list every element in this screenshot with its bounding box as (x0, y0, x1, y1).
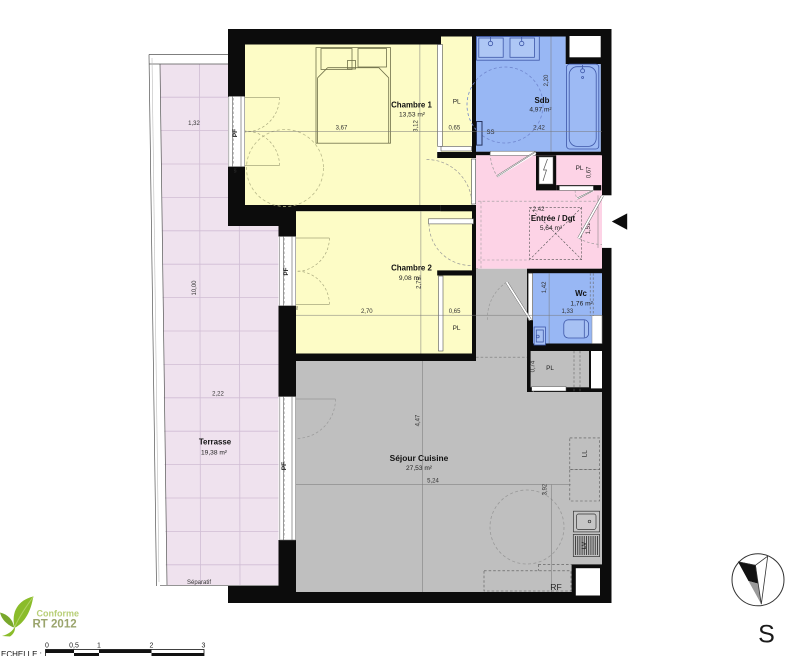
svg-text:S: S (758, 621, 775, 649)
svg-text:Conforme: Conforme (37, 609, 80, 619)
svg-text:2,42: 2,42 (533, 207, 545, 213)
svg-text:Séjour Cuisine: Séjour Cuisine (390, 453, 449, 463)
svg-text:PL: PL (546, 365, 554, 372)
svg-text:2,22: 2,22 (212, 392, 224, 398)
svg-text:0,74: 0,74 (531, 360, 537, 372)
svg-text:1: 1 (97, 643, 101, 650)
svg-text:5,24: 5,24 (427, 479, 439, 485)
svg-text:1,32: 1,32 (188, 121, 200, 127)
svg-text:4,47: 4,47 (416, 414, 422, 426)
svg-text:0,65: 0,65 (449, 125, 461, 131)
svg-text:0,67: 0,67 (587, 166, 593, 178)
svg-text:2,79: 2,79 (417, 277, 423, 289)
svg-text:Chambre 2: Chambre 2 (391, 264, 432, 273)
svg-text:0,5: 0,5 (69, 643, 79, 650)
svg-text:0,65: 0,65 (449, 309, 461, 315)
svg-text:PF: PF (232, 129, 239, 137)
svg-text:1,76 m²: 1,76 m² (570, 300, 593, 307)
svg-text:PL: PL (453, 98, 461, 105)
svg-text:ECHELLE :: ECHELLE : (1, 650, 42, 656)
svg-text:Sdb: Sdb (535, 96, 550, 105)
svg-text:2,20: 2,20 (544, 74, 550, 86)
svg-text:VR: VR (234, 168, 238, 173)
svg-text:4,97 m²: 4,97 m² (529, 107, 552, 114)
svg-text:LV: LV (581, 541, 588, 549)
svg-text:RF: RF (550, 582, 561, 592)
svg-text:PL: PL (576, 165, 584, 172)
svg-text:LL: LL (582, 450, 589, 458)
svg-text:3,92: 3,92 (543, 483, 549, 495)
svg-text:13,53 m²: 13,53 m² (399, 112, 426, 119)
svg-text:2,70: 2,70 (361, 309, 373, 315)
svg-text:Wc: Wc (575, 289, 587, 298)
svg-text:10,00: 10,00 (192, 280, 198, 296)
svg-text:0: 0 (45, 643, 49, 650)
svg-text:PF: PF (281, 462, 288, 470)
svg-text:90: 90 (295, 306, 299, 310)
svg-text:RT 2012: RT 2012 (33, 619, 77, 631)
svg-text:Entrée / Dgt: Entrée / Dgt (531, 214, 576, 223)
svg-text:3,67: 3,67 (336, 125, 348, 131)
svg-text:1,42: 1,42 (542, 281, 548, 293)
svg-text:3,12: 3,12 (414, 120, 420, 132)
svg-text:19,38 m²: 19,38 m² (201, 450, 228, 457)
svg-text:2,42: 2,42 (533, 125, 545, 131)
svg-text:1,33: 1,33 (562, 309, 574, 315)
svg-text:5,64 m²: 5,64 m² (540, 225, 563, 232)
svg-text:SS: SS (487, 130, 495, 136)
svg-text:Chambre 1: Chambre 1 (391, 101, 432, 110)
svg-text:27,53 m²: 27,53 m² (406, 465, 433, 472)
svg-text:3: 3 (202, 643, 206, 650)
svg-text:PL: PL (453, 325, 461, 332)
svg-text:Séparatif: Séparatif (187, 580, 211, 586)
svg-text:Terrasse: Terrasse (199, 438, 232, 447)
svg-text:PF: PF (283, 267, 290, 275)
svg-text:2: 2 (150, 643, 154, 650)
